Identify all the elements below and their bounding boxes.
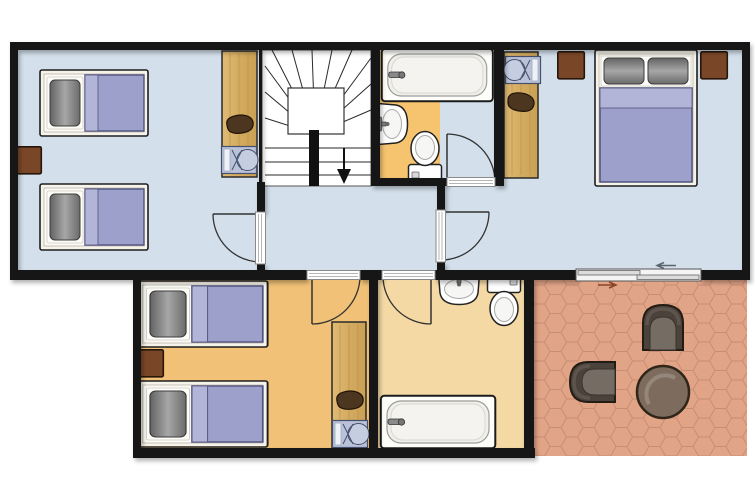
cot	[222, 147, 259, 174]
floor-hallway	[262, 180, 445, 280]
armchair	[570, 362, 615, 402]
bedroom-top-right	[504, 50, 727, 186]
staircase	[262, 50, 371, 186]
floor-plan	[0, 0, 755, 504]
threshold	[256, 212, 266, 264]
cot	[504, 57, 541, 84]
terrace-floor	[534, 280, 747, 456]
toilet	[409, 132, 442, 182]
round-table	[637, 366, 689, 418]
nightstand	[701, 52, 728, 79]
stair-landing	[288, 88, 344, 134]
sliding-panel	[637, 275, 699, 280]
nightstand	[558, 52, 585, 79]
toilet	[488, 276, 521, 326]
cot	[333, 421, 370, 448]
single-bed	[40, 70, 148, 136]
bathtub	[382, 49, 493, 102]
threshold	[307, 271, 360, 280]
double-bed	[595, 50, 697, 186]
threshold	[436, 210, 446, 262]
threshold	[382, 271, 435, 280]
single-bed	[40, 184, 148, 250]
single-bed	[138, 281, 268, 347]
washbasin	[376, 104, 408, 144]
sliding-panel	[578, 271, 640, 276]
single-bed	[138, 381, 268, 447]
threshold	[447, 178, 495, 187]
armchair	[643, 305, 683, 350]
nightstand	[15, 147, 42, 174]
bathtub	[381, 396, 496, 449]
floor-plan-canvas	[0, 0, 755, 504]
stair-center-wall	[309, 130, 319, 186]
